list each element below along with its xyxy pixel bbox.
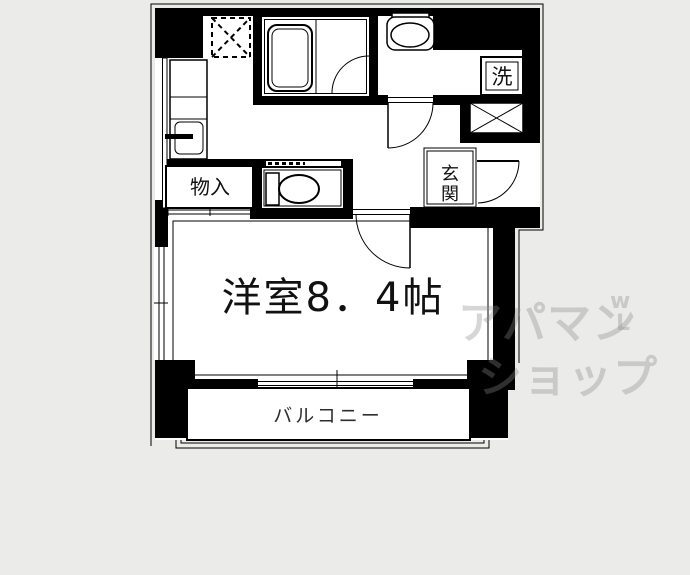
balcony-label: バルコニー [273, 405, 383, 427]
entrance-label-2: 関 [441, 184, 459, 205]
storage-box: 物入 [166, 166, 253, 216]
toilet-room [262, 161, 343, 208]
toilet [266, 173, 319, 205]
watermark: アパマン w L ショップ [458, 289, 658, 403]
kitchen-counter [165, 60, 207, 159]
balcony: バルコニー [187, 388, 470, 440]
main-room-label: 洋室8．4帖 [222, 275, 445, 321]
storage-label: 物入 [190, 175, 230, 199]
entrance-label-1: 玄 [441, 164, 459, 185]
laundry-box: 洗 [481, 57, 523, 95]
washbasin [387, 13, 434, 50]
bathroom [262, 17, 369, 96]
pipe-space-box [470, 103, 523, 133]
floor-plan-drawing: 洗 物入 [0, 0, 690, 575]
faucet [165, 134, 193, 139]
watermark-mark-bottom: L [616, 311, 630, 336]
floor-plan: 洗 物入 [0, 0, 690, 575]
watermark-line2: ショップ [478, 352, 658, 403]
laundry-label: 洗 [492, 65, 513, 89]
left-window [154, 247, 168, 360]
